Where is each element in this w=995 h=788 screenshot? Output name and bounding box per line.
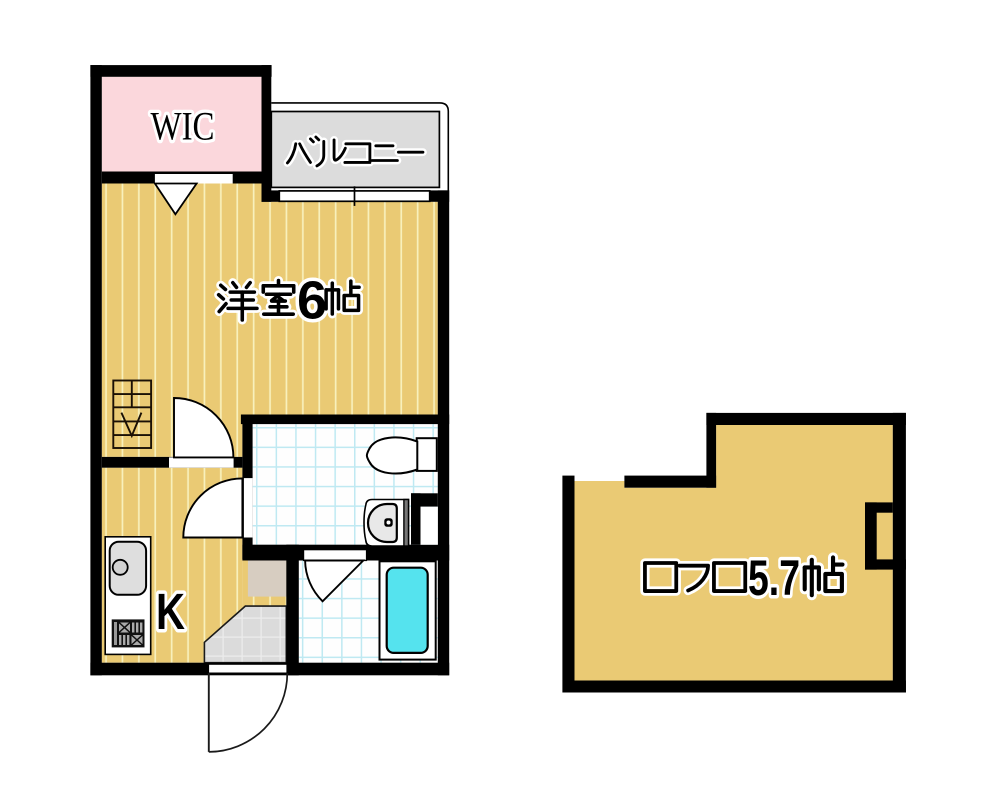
svg-text:6: 6 bbox=[297, 271, 327, 331]
svg-text:K: K bbox=[156, 583, 185, 640]
svg-text:5.7: 5.7 bbox=[748, 550, 800, 606]
svg-text:WIC: WIC bbox=[151, 104, 215, 149]
